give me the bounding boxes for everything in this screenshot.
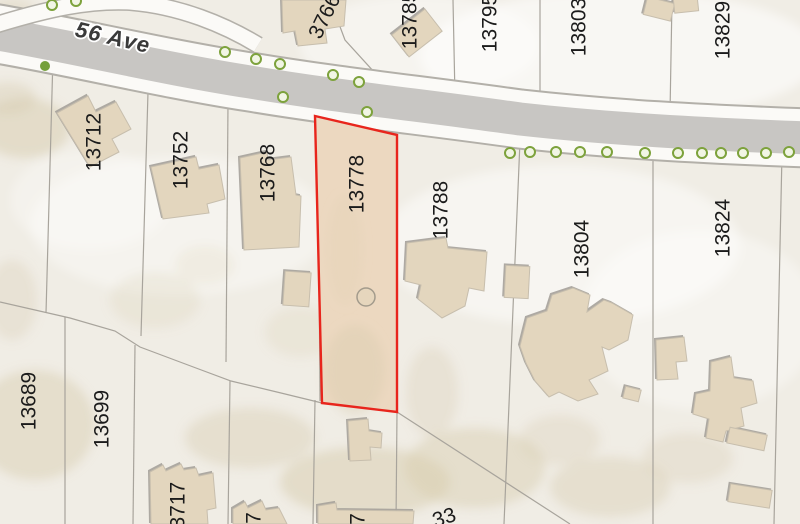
- tree-icon: [220, 47, 230, 57]
- tree-icon: [47, 0, 57, 10]
- parcel-label-13785: 13785: [398, 0, 421, 49]
- parcel-label-13699: 13699: [90, 390, 113, 448]
- tree-icon: [602, 147, 612, 157]
- parcel-label-13712: 13712: [82, 113, 105, 171]
- parcel-label-13824: 13824: [711, 198, 734, 257]
- tree-icon: [328, 70, 338, 80]
- tree-icon: [784, 147, 794, 157]
- tree-icon: [525, 147, 535, 157]
- tree-icon: [505, 148, 515, 158]
- tree-icon: [362, 107, 372, 117]
- parcel-label-13752: 13752: [169, 131, 192, 189]
- map-canvas[interactable]: 56 Ave3766137851379513803138291371213752…: [0, 0, 800, 524]
- tree-icon: [354, 77, 364, 87]
- tree-icon: [738, 148, 748, 158]
- tree-icon: [278, 92, 288, 102]
- building: [673, 0, 698, 13]
- tree-icon: [551, 147, 561, 157]
- parcel-label-13803: 13803: [567, 0, 590, 56]
- building: [283, 271, 311, 307]
- parcel-label-13829: 13829: [711, 1, 734, 59]
- parcel-label-13768: 13768: [256, 144, 279, 202]
- tree-icon: [697, 148, 707, 158]
- tree-icon: [640, 148, 650, 158]
- parcel-label-13795: 13795: [478, 0, 501, 52]
- tree-icon: [673, 148, 683, 158]
- parcel-label-13778: 13778: [345, 155, 368, 213]
- parcel-label-13717: 13717: [166, 482, 189, 524]
- parcel-feature-circle: [357, 288, 375, 306]
- tree-solid-icon: [40, 61, 50, 71]
- tree-icon: [761, 148, 771, 158]
- tree-icon: [71, 0, 81, 6]
- building: [504, 265, 530, 298]
- map-viewport[interactable]: 56 Ave3766137851379513803138291371213752…: [0, 0, 800, 524]
- parcel-label-13788: 13788: [429, 181, 452, 239]
- parcel-label-partial-7-left: 7: [242, 512, 265, 524]
- tree-icon: [275, 59, 285, 69]
- parcel-label-partial-7-mid: 7: [346, 513, 369, 524]
- tree-icon: [251, 54, 261, 64]
- tree-icon: [575, 147, 585, 157]
- parcel-label-13689: 13689: [17, 372, 40, 430]
- parcel-label-13804: 13804: [570, 219, 593, 278]
- tree-icon: [716, 148, 726, 158]
